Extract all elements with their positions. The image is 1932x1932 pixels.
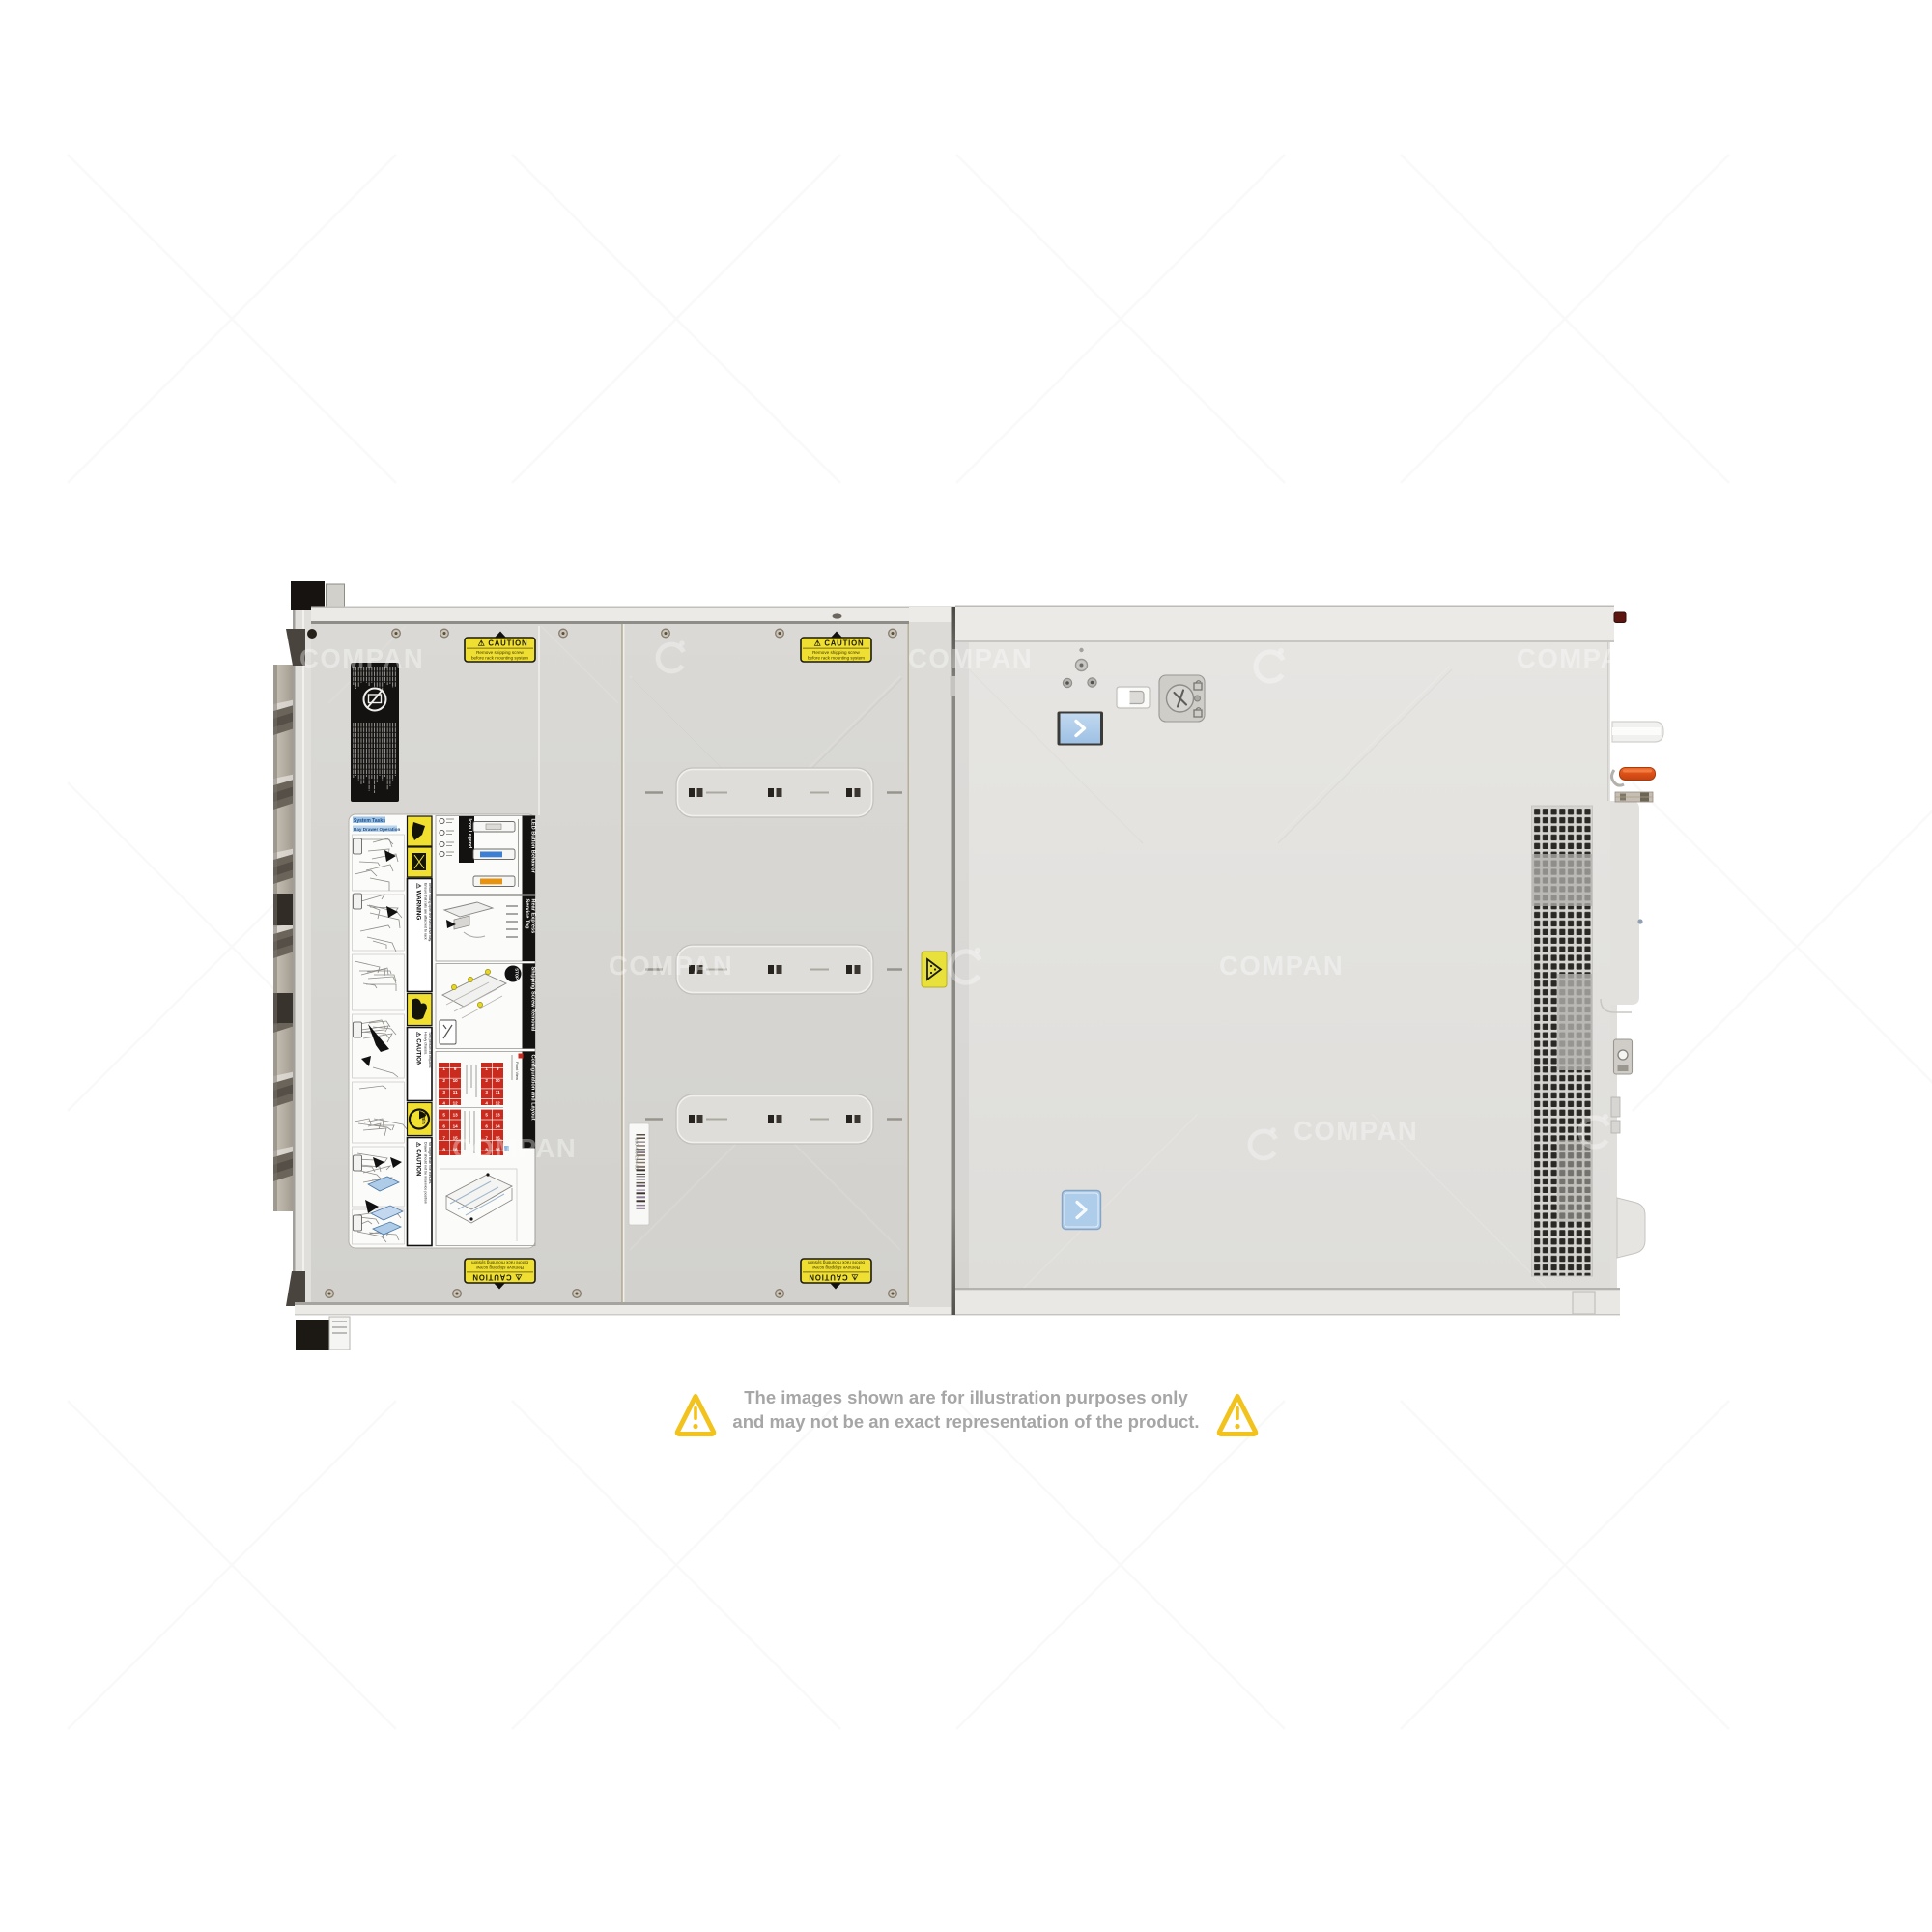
svg-text:⚠ CAUTION: ⚠ CAUTION: [415, 1032, 422, 1066]
svg-text:9: 9: [454, 1066, 457, 1071]
svg-text:13: 13: [453, 1113, 459, 1118]
svg-text:Remove shipping screw: Remove shipping screw: [811, 1265, 859, 1270]
svg-text:⚠ WARNING: ⚠ WARNING: [415, 883, 422, 920]
svg-text:Remove shipping screw: Remove shipping screw: [475, 1265, 523, 1270]
svg-text:Ensure that rails are attached: Ensure that rails are attached to rack: [424, 883, 428, 940]
svg-text:COMPAN: COMPAN: [908, 643, 1033, 673]
svg-text:4: 4: [485, 1101, 488, 1106]
svg-text:Remove shipping screw: Remove shipping screw: [812, 650, 860, 655]
svg-text:5: 5: [442, 1113, 445, 1118]
svg-text:⚠ CAUTION: ⚠ CAUTION: [809, 1272, 859, 1281]
svg-text:before sliding open the hard d: before sliding open the hard drive bay.: [428, 883, 432, 942]
svg-text:7: 7: [442, 1135, 445, 1140]
svg-text:14: 14: [496, 1124, 501, 1129]
svg-text:3: 3: [485, 1090, 488, 1094]
svg-text:10: 10: [496, 1078, 501, 1083]
svg-text:3: 3: [442, 1090, 445, 1094]
svg-text:Configuration and Layout: Configuration and Layout: [530, 1055, 536, 1121]
svg-text:10: 10: [453, 1078, 459, 1083]
svg-text:Remove shipping screw: Remove shipping screw: [476, 650, 524, 655]
svg-text:6: 6: [485, 1124, 488, 1129]
svg-text:Heavy chassis.: Heavy chassis.: [424, 1032, 428, 1055]
svg-text:8: 8: [442, 1147, 445, 1151]
svg-text:2: 2: [442, 1078, 445, 1083]
svg-text:2: 2: [485, 1078, 488, 1083]
svg-text:and may not be an exact repres: and may not be an exact representation o…: [732, 1411, 1199, 1432]
svg-text:4: 4: [442, 1101, 445, 1106]
svg-text:LED Button Behavior: LED Button Behavior: [530, 819, 536, 874]
svg-text:11: 11: [453, 1090, 458, 1094]
svg-text:COMPAN: COMPAN: [452, 1133, 577, 1163]
svg-text:5: 5: [485, 1113, 488, 1118]
svg-text:Bay Drawer Operation: Bay Drawer Operation: [354, 827, 400, 832]
svg-text:COMPAN: COMPAN: [1219, 951, 1344, 980]
svg-text:COMPAN: COMPAN: [609, 951, 733, 980]
svg-text:for longer than five minutes.: for longer than five minutes.: [428, 1142, 432, 1184]
svg-text:Drawer should not be in servic: Drawer should not be in service position: [424, 1142, 428, 1204]
svg-text:11: 11: [496, 1090, 500, 1094]
svg-text:The images shown are for illus: The images shown are for illustration pu…: [744, 1387, 1188, 1407]
svg-text:Icon Legend: Icon Legend: [467, 819, 472, 849]
svg-text:12: 12: [496, 1101, 501, 1106]
svg-text:12: 12: [453, 1101, 459, 1106]
svg-text:before rack mounting system: before rack mounting system: [808, 1260, 865, 1264]
svg-text:Two person lift required.: Two person lift required.: [428, 1032, 432, 1068]
svg-text:14: 14: [453, 1124, 459, 1129]
svg-text:System Tasks: System Tasks: [354, 818, 385, 824]
svg-text:⚠ CAUTION: ⚠ CAUTION: [478, 639, 528, 648]
svg-text:Shipping Screw Removal: Shipping Screw Removal: [530, 967, 536, 1032]
svg-text:COMPAN: COMPAN: [1517, 643, 1641, 673]
svg-text:5min: 5min: [420, 1113, 426, 1124]
svg-text:1: 1: [485, 1066, 488, 1071]
svg-text:before rack mounting system: before rack mounting system: [808, 656, 865, 661]
svg-text:COMPAN: COMPAN: [1293, 1116, 1418, 1146]
svg-text:⚠ CAUTION: ⚠ CAUTION: [814, 639, 865, 648]
svg-text:100-400-294-03: 100-400-294-03: [635, 1138, 639, 1170]
svg-text:before rack mounting system: before rack mounting system: [471, 1260, 528, 1264]
svg-text:1: 1: [442, 1066, 445, 1071]
svg-text:Service Tag: Service Tag: [525, 899, 530, 930]
svg-text:before rack mounting system: before rack mounting system: [471, 656, 528, 661]
svg-text:COMPAN: COMPAN: [299, 643, 424, 673]
svg-text:STOP: STOP: [515, 968, 520, 980]
svg-text:⚠ CAUTION: ⚠ CAUTION: [472, 1272, 523, 1281]
svg-text:9: 9: [497, 1066, 499, 1071]
svg-text:6: 6: [442, 1124, 445, 1129]
svg-text:Front View: Front View: [515, 1062, 520, 1080]
svg-text:13: 13: [496, 1113, 501, 1118]
svg-text:⚠ CAUTION: ⚠ CAUTION: [415, 1142, 422, 1177]
